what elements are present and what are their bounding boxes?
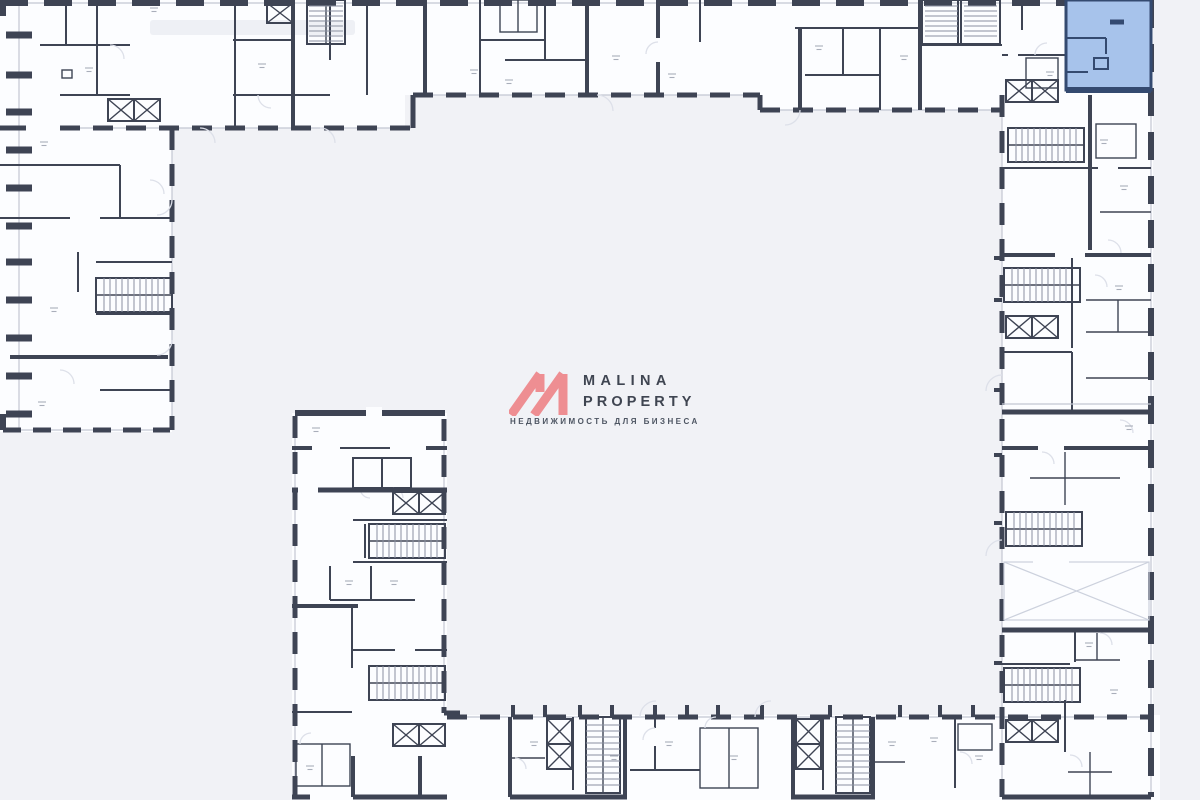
faint-watermark-text bbox=[150, 20, 355, 35]
brand-name: MALINA PROPERTY bbox=[583, 371, 696, 413]
watermark-logo: MALINA PROPERTY НЕДВИЖИМОСТЬ ДЛЯ БИЗНЕСА bbox=[505, 362, 705, 434]
highlighted-unit[interactable] bbox=[1066, 0, 1151, 90]
brand-name-line2: PROPERTY bbox=[583, 392, 696, 413]
floor-plan-viewer: MALINA PROPERTY НЕДВИЖИМОСТЬ ДЛЯ БИЗНЕСА bbox=[0, 0, 1200, 800]
brand-tagline: НЕДВИЖИМОСТЬ ДЛЯ БИЗНЕСА bbox=[510, 417, 700, 426]
malina-logo-mark bbox=[509, 370, 573, 416]
brand-name-line1: MALINA bbox=[583, 371, 696, 392]
